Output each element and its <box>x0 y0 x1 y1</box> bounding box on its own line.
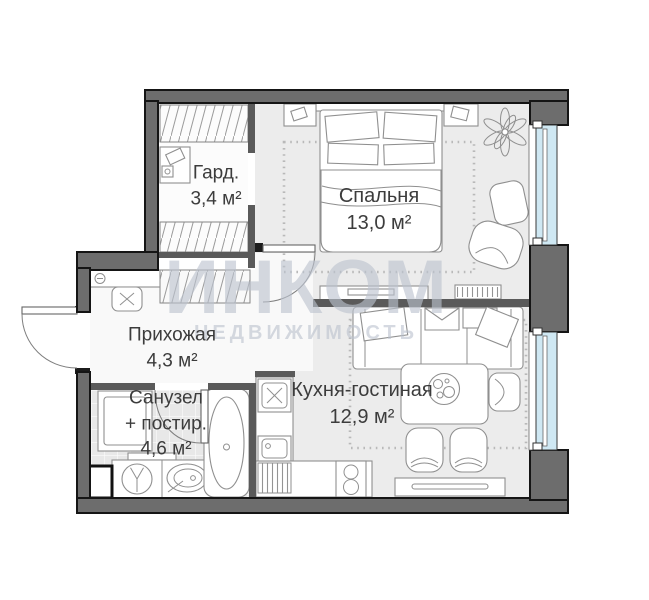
kitchen-living-area: 12,9 м² <box>291 404 433 431</box>
sofa <box>353 307 523 369</box>
kitchen-unit <box>258 436 291 461</box>
hallway-name: Прихожая <box>128 322 216 348</box>
wardrobe-label: Гард. 3,4 м² <box>190 160 241 211</box>
decor-plate <box>429 374 460 405</box>
hallway-sink <box>112 287 142 311</box>
nightstand-right <box>444 104 478 126</box>
bathtub <box>204 389 249 497</box>
dining-chair-1 <box>406 428 443 472</box>
nightstand-left <box>284 104 316 126</box>
kitchen-living-label: Кухня-гостиная 12,9 м² <box>291 377 433 431</box>
living-tv-stand <box>395 478 505 496</box>
toilet <box>122 464 152 494</box>
wardrobe-area: 3,4 м² <box>190 186 241 212</box>
bedroom-label: Спальня 13,0 м² <box>339 183 419 237</box>
bedroom-name: Спальня <box>339 183 419 210</box>
dining-armchair <box>489 373 520 411</box>
dining-chair-2 <box>450 428 487 472</box>
bathroom-label: Санузел + постир. 4,6 м² <box>125 386 207 463</box>
kitchen-sink <box>258 379 291 412</box>
bathroom-name: Санузел <box>125 386 207 412</box>
floor-plan-drawing <box>0 0 649 600</box>
window-bedroom <box>529 121 557 245</box>
bathroom-washbasin <box>167 464 207 492</box>
wardrobe-name: Гард. <box>190 160 241 186</box>
hallway-label: Прихожая 4,3 м² <box>128 322 216 373</box>
entrance-door <box>22 306 90 374</box>
hallway-cabinet <box>90 270 160 287</box>
bedroom-tv-console <box>320 286 428 300</box>
hallway-area: 4,3 м² <box>128 348 216 374</box>
wardrobe-desk <box>160 147 190 183</box>
stove <box>336 461 366 497</box>
floor-plan: ИНКОМ НЕДВИЖИМОСТЬ Гард. 3,4 м² Спальня … <box>0 0 649 600</box>
kitchen-living-name: Кухня-гостиная <box>291 377 433 404</box>
bathroom-area: 4,6 м² <box>125 437 207 463</box>
hallway-closet <box>160 270 250 303</box>
window-living <box>529 328 557 450</box>
bedroom-dresser <box>455 285 501 299</box>
bedroom-area: 13,0 м² <box>339 210 419 237</box>
wardrobe-shelving-bottom <box>160 222 248 252</box>
dishwasher <box>258 463 291 493</box>
bathroom-name-2: + постир. <box>125 411 207 437</box>
wardrobe-shelving-top <box>160 105 248 142</box>
